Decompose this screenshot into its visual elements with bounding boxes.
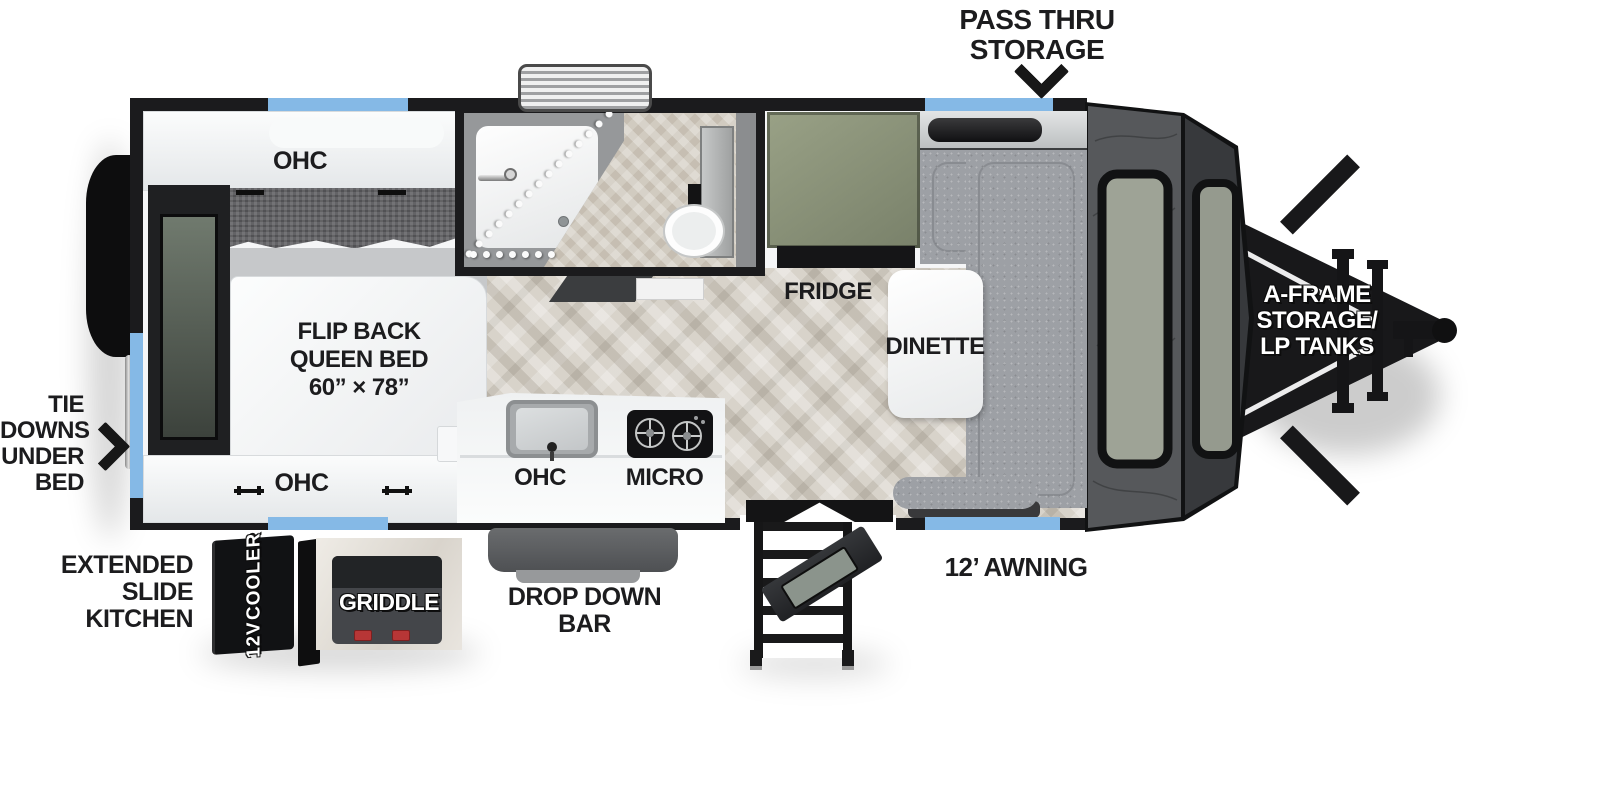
roof-vent <box>518 64 652 112</box>
tie-downs-line3: UNDER <box>0 444 84 470</box>
window-bottom-left <box>268 517 388 530</box>
burner-right <box>672 421 702 451</box>
bathroom-door-panel <box>636 278 704 300</box>
front-window-left <box>1102 174 1168 464</box>
dinette-bench-right <box>966 150 1087 508</box>
bathroom <box>455 104 765 276</box>
a-frame-storage-label: A-FRAME STORAGE/ LP TANKS <box>1238 282 1396 360</box>
burner-left <box>635 418 665 448</box>
dinette-label: DINETTE <box>865 334 1005 360</box>
window-top-left <box>268 98 408 111</box>
awning-label: 12’ AWNING <box>921 553 1111 581</box>
bed-label-line2: QUEEN BED <box>249 347 469 373</box>
curtain-rod-bracket-left <box>236 190 264 195</box>
storage-hatch-handle <box>928 118 1042 142</box>
hitch-strut-top <box>1280 155 1360 235</box>
extended-line1: EXTENDED <box>40 552 193 579</box>
bathroom-wall-strip <box>736 113 756 267</box>
cooler-label: 12V COOLER <box>215 535 294 655</box>
tie-downs-line4: BED <box>0 470 84 496</box>
griddle-knob-left <box>354 630 372 641</box>
bed-label-line3: 60” × 78” <box>249 375 469 401</box>
overhead-cabinet-rear-bottom: OHC <box>143 455 460 523</box>
drop-down-bar-label-line1: DROP DOWN <box>492 584 677 611</box>
refrigerator <box>767 112 920 248</box>
threshold-notch <box>746 500 893 522</box>
step-foot-right <box>842 650 854 670</box>
shower-stall <box>464 113 624 267</box>
drop-down-bar-tray <box>516 570 640 583</box>
griddle-knob-right <box>392 630 410 641</box>
a-frame-line1: A-FRAME <box>1238 282 1396 308</box>
bed-label-line1: FLIP BACK <box>249 319 469 345</box>
drop-down-bar-label-line2: BAR <box>492 611 677 638</box>
drop-down-bar <box>488 528 678 572</box>
shower-faucet-knob <box>504 168 517 181</box>
step-foot-left <box>750 650 762 670</box>
window-bottom-right <box>925 517 1060 530</box>
extended-slide-kitchen-label: EXTENDED SLIDE KITCHEN <box>40 552 193 633</box>
sink-faucet <box>547 442 557 452</box>
tie-downs-line2: DOWNS <box>0 418 84 444</box>
griddle-lid <box>332 556 442 588</box>
drop-down-bar-label: DROP DOWN BAR <box>492 584 677 638</box>
a-frame-line3: LP TANKS <box>1238 334 1396 360</box>
fridge-label: FRIDGE <box>768 279 888 305</box>
12v-cooler: 12V COOLER <box>212 535 294 655</box>
floorplan-canvas: OHC FLIP BACK QUEEN BED 60” × 78” OHC FR… <box>0 0 1600 812</box>
door-threshold <box>746 500 893 522</box>
window-left-wall <box>130 333 143 498</box>
wardrobe-door-glass <box>160 214 218 440</box>
hitch-crossbar-1-cap-top <box>1332 249 1354 259</box>
hitch-crossbar-1-cap-bottom <box>1332 403 1354 413</box>
window-top-right <box>925 98 1053 111</box>
front-window-right <box>1196 183 1236 455</box>
cooktop-knob-dot1 <box>694 416 698 420</box>
extended-line2: SLIDE <box>40 579 193 606</box>
bed-curtain <box>230 188 457 252</box>
overhead-cabinet-rear-top: OHC <box>143 111 457 191</box>
cooler-label-line2: COOLER <box>244 532 266 621</box>
cooktop-knob-dot2 <box>701 420 705 424</box>
micro-label: MICRO <box>617 465 712 491</box>
ohc-kitchen-label: OHC <box>500 465 580 491</box>
griddle-label: GRIDDLE <box>316 590 462 615</box>
dinette-bench-bottom <box>893 477 1038 509</box>
front-cap <box>1085 96 1255 536</box>
shower-curtain-bottom <box>470 251 555 258</box>
curtain-rod-bracket-right <box>378 190 406 195</box>
extended-line3: KITCHEN <box>40 606 193 633</box>
sink-faucet-stem <box>550 452 554 461</box>
a-frame-line2: STORAGE/ <box>1238 308 1396 334</box>
hitch-crossbar-2-cap-top <box>1367 260 1388 269</box>
cooler-label-line1: 12V <box>244 620 266 658</box>
hitch-coupler-ball <box>1432 318 1457 343</box>
hitch-jack <box>1404 337 1413 357</box>
pillow <box>269 118 444 148</box>
refrigerator-base <box>777 246 915 268</box>
toilet-seat <box>672 212 716 250</box>
shower-drain <box>558 216 569 227</box>
bed-tie-down-left <box>234 489 264 493</box>
tie-downs-label: TIE DOWNS UNDER BED <box>0 392 84 496</box>
bed-tie-down-right <box>382 489 412 493</box>
ohc-rear-top-label: OHC <box>144 148 456 175</box>
hitch-crossbar-2-cap-bottom <box>1367 392 1388 401</box>
tie-downs-line1: TIE <box>0 392 84 418</box>
pass-thru-line1: PASS THRU <box>942 5 1132 35</box>
